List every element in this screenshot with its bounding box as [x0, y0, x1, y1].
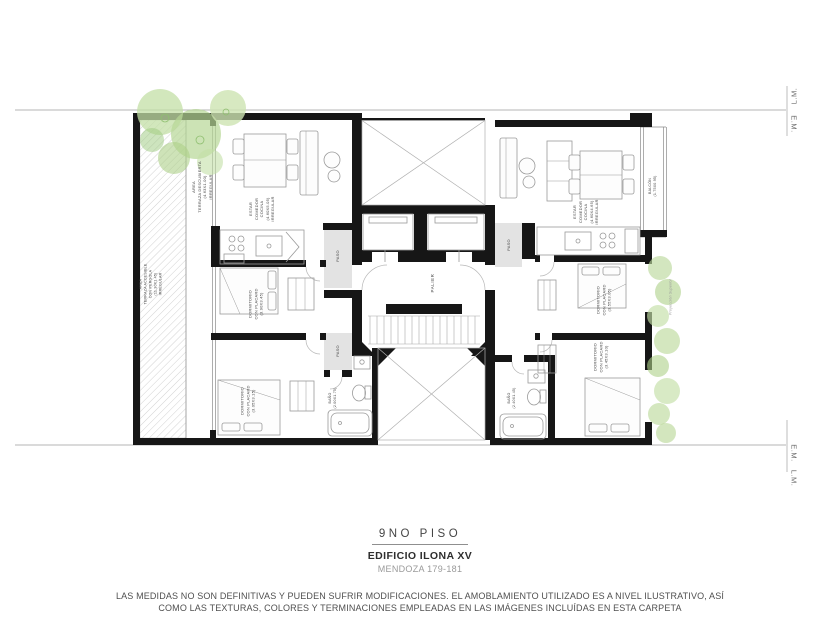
- marker-em-bottom: E.M.: [790, 444, 799, 461]
- label-terrace-left: AREA TERRAZA ACCESIBLE CON PERGOLA (11.3…: [138, 264, 163, 305]
- label-right-bedroom-1: DORMITORIO CON PLACARD (3.55X3.05): [596, 284, 613, 315]
- marker-lm-bottom: L.M.: [790, 470, 799, 487]
- label-balcony: BALCÓN (1.75X0.95): [648, 176, 658, 197]
- disclaimer: LAS MEDIDAS NO SON DEFINITIVAS Y PUEDEN …: [0, 591, 840, 614]
- label-right-bedroom-2: DORMITORIO CON PLACARD (3.45X3.10): [593, 341, 610, 372]
- label-projection-note: Proyección Superior: [668, 279, 673, 315]
- disclaimer-line-2: COMO LAS TEXTURAS, COLORES Y TERMINACION…: [0, 603, 840, 615]
- title-block: 9NO PISO EDIFICIO ILONA XV MENDOZA 179-1…: [0, 528, 840, 574]
- disclaimer-line-1: LAS MEDIDAS NO SON DEFINITIVAS Y PUEDEN …: [0, 591, 840, 603]
- air-shafts: [362, 121, 485, 441]
- label-left-paso-2: PASO: [335, 345, 341, 357]
- label-right-bath: BAÑO (2.40X1.45): [507, 388, 517, 409]
- floor-title: 9NO PISO: [0, 528, 840, 540]
- label-left-bath: BAÑO (2.00X1.75): [328, 388, 338, 409]
- label-terrace-top: AREA TERRAZA DESCUBIERTA (4.63X1.00) IRR…: [191, 161, 213, 212]
- marker-lm-top: L.M.: [790, 88, 799, 105]
- label-palier: PALIER: [430, 274, 436, 293]
- staircase: [368, 316, 480, 344]
- label-right-paso: PASO: [506, 239, 512, 251]
- building-name: EDIFICIO ILONA XV: [0, 550, 840, 562]
- marker-em-top: E.M.: [790, 115, 799, 132]
- floor-plan-sheet: AREA TERRAZA DESCUBIERTA (4.63X1.00) IRR…: [0, 0, 840, 630]
- label-right-living: ESTAR COMEDOR COCINA (4.60X4.65) IRREGUL…: [572, 199, 600, 224]
- label-left-bedroom-2: DORMITORIO CON PLACARD (3.05X3.15): [240, 385, 257, 416]
- title-rule: [372, 544, 468, 545]
- building-address: MENDOZA 179-181: [0, 564, 840, 574]
- label-left-living: ESTAR COMEDOR COCINA (4.60X5.05) IRREGUL…: [248, 196, 276, 221]
- label-left-bedroom-1: DORMITORIO CON PLACARD (3.90X3.45): [248, 288, 265, 319]
- label-left-paso-1: PASO: [335, 250, 341, 262]
